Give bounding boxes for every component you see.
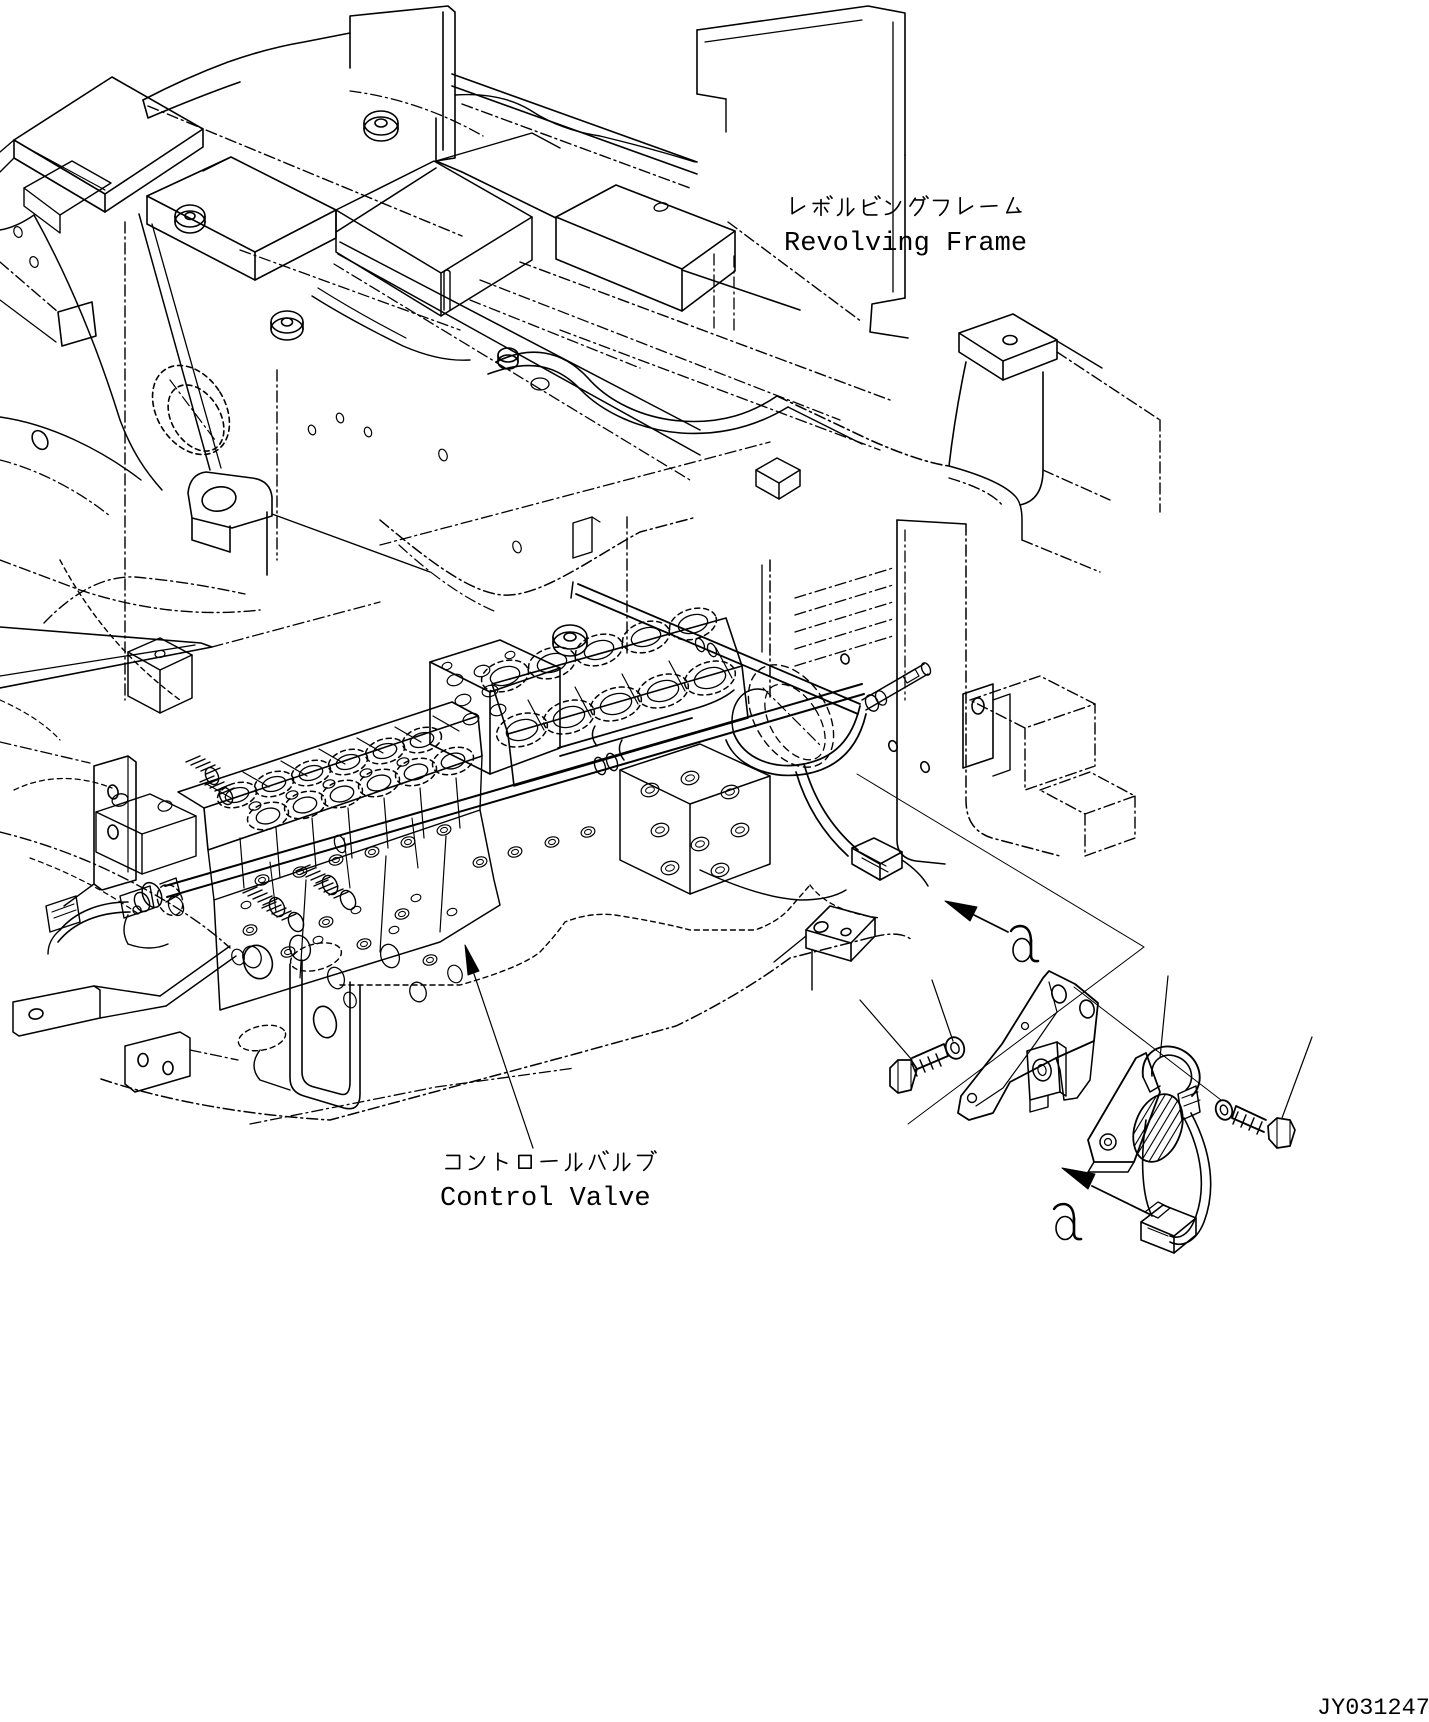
svg-text:Control Valve: Control Valve xyxy=(440,1184,651,1214)
svg-text:Revolving Frame: Revolving Frame xyxy=(784,229,1027,259)
svg-text:JY031247: JY031247 xyxy=(1317,1695,1429,1717)
